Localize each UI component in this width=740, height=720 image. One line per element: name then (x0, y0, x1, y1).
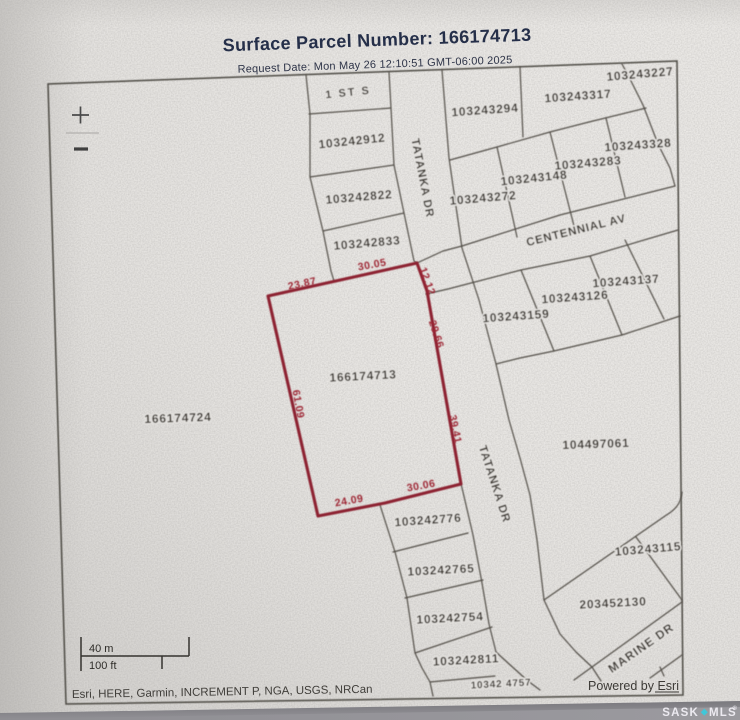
svg-text:®: ® (733, 705, 738, 712)
svg-text:100 ft: 100 ft (89, 660, 117, 672)
svg-text:40 m: 40 m (89, 643, 113, 655)
svg-text:Powered by Esri: Powered by Esri (588, 679, 679, 693)
svg-text:104497061: 104497061 (562, 436, 630, 452)
svg-text:166174724: 166174724 (144, 410, 212, 426)
svg-text:SASK: SASK (662, 707, 699, 719)
